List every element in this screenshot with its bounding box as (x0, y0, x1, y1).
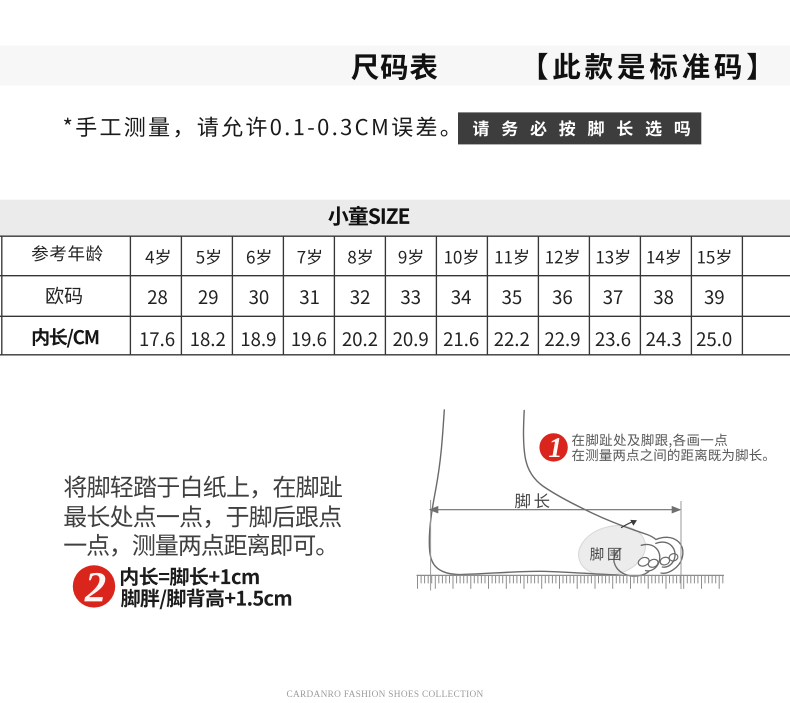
svg-text:CARDANRO FASHION SHOES COLLECT: CARDANRO FASHION SHOES COLLECTION (286, 690, 483, 700)
